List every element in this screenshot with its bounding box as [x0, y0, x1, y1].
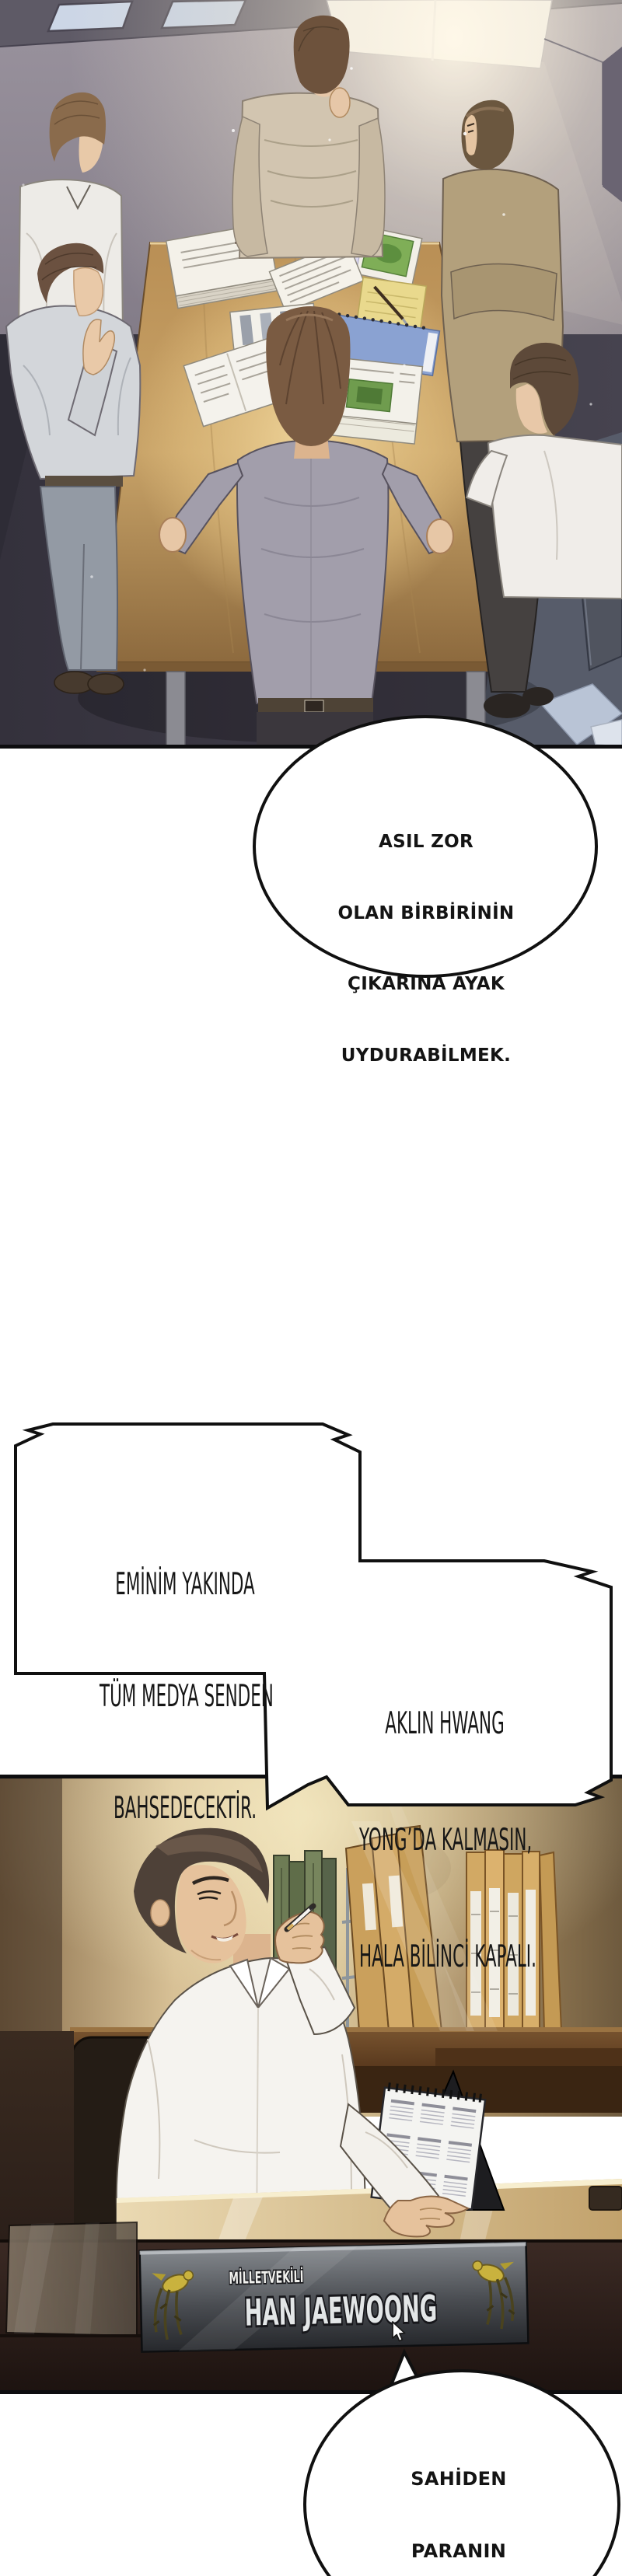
desk-object [589, 2187, 622, 2210]
nameplate-title: MİLLETVEKİLİ [229, 2266, 303, 2288]
comic-page: MİLLETVEKİLİ HAN JAEWOONG ASIL ZOR OLAN … [0, 0, 622, 2576]
bubble-2-line: EMİNİM YAKINDA [100, 1566, 271, 1604]
bubble-1-line: UYDURABİLMEK. [271, 1044, 582, 1068]
bubble-1-line: ÇIKARINA AYAK [271, 972, 582, 997]
speech-bubble-3-text: AKLIN HWANG YONG’DA KALMASIN, HALA BİLİN… [359, 1627, 530, 2054]
bubble-3-line: YONG’DA KALMASIN, [359, 1821, 530, 1860]
bubble-4-line: SAHİDEN [303, 2467, 614, 2491]
speech-bubble-1-text: ASIL ZOR OLAN BİRBİRİNİN ÇIKARINA AYAK U… [271, 783, 582, 1115]
speech-bubble-2-text: EMİNİM YAKINDA TÜM MEDYA SENDEN BAHSEDEC… [100, 1492, 271, 1902]
mouse-cursor-icon [392, 2321, 409, 2344]
bubble-2-line: BAHSEDECEKTİR. [100, 1790, 271, 1827]
bubble-1-line: OLAN BİRBİRİNİN [271, 902, 582, 926]
speech-bubble-4-text: SAHİDEN PARANIN AÇAMAYACAĞI KAPI YOK. [303, 2419, 614, 2576]
nameplate: MİLLETVEKİLİ HAN JAEWOONG [140, 2242, 529, 2351]
bubble-4-line: PARANIN [303, 2539, 614, 2564]
bubble-3-line: HALA BİLİNCİ KAPALI. [359, 1938, 530, 1977]
glass-front-panel [0, 2222, 142, 2337]
ear [151, 1900, 169, 1926]
bubble-2-line: TÜM MEDYA SENDEN [100, 1678, 271, 1716]
bubble-3-line: AKLIN HWANG [359, 1705, 530, 1744]
panel-meeting-room [0, 0, 622, 749]
bubble-1-line: ASIL ZOR [271, 830, 582, 854]
